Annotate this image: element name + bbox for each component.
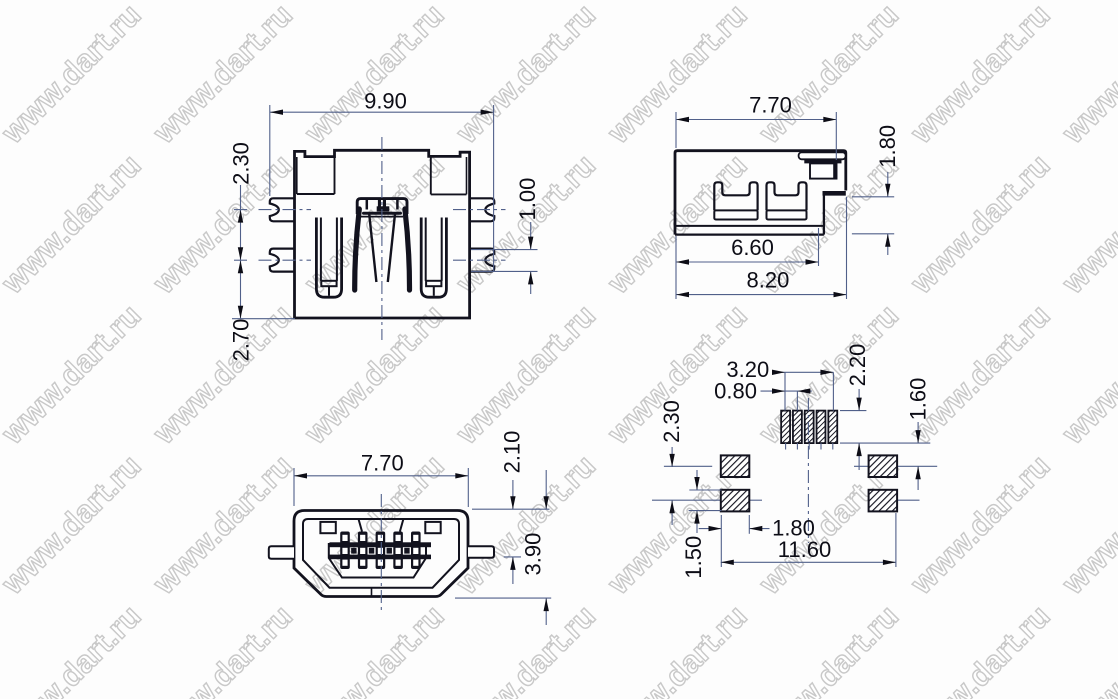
- svg-text:9.90: 9.90: [364, 89, 407, 114]
- svg-text:2.10: 2.10: [500, 431, 525, 474]
- svg-text:2.20: 2.20: [845, 344, 870, 387]
- svg-text:7.70: 7.70: [749, 93, 792, 118]
- svg-text:1.50: 1.50: [681, 536, 706, 579]
- svg-text:1.60: 1.60: [905, 378, 930, 421]
- svg-text:1.80: 1.80: [875, 125, 900, 168]
- svg-text:8.20: 8.20: [746, 268, 789, 293]
- svg-text:7.70: 7.70: [361, 450, 404, 475]
- svg-text:2.30: 2.30: [228, 142, 253, 185]
- svg-text:0.80: 0.80: [714, 378, 757, 403]
- svg-text:1.00: 1.00: [515, 178, 540, 221]
- svg-text:11.60: 11.60: [778, 537, 831, 562]
- svg-text:2.70: 2.70: [228, 319, 253, 362]
- svg-text:2.30: 2.30: [659, 400, 684, 443]
- svg-text:6.60: 6.60: [731, 235, 774, 260]
- svg-text:3.90: 3.90: [521, 533, 546, 576]
